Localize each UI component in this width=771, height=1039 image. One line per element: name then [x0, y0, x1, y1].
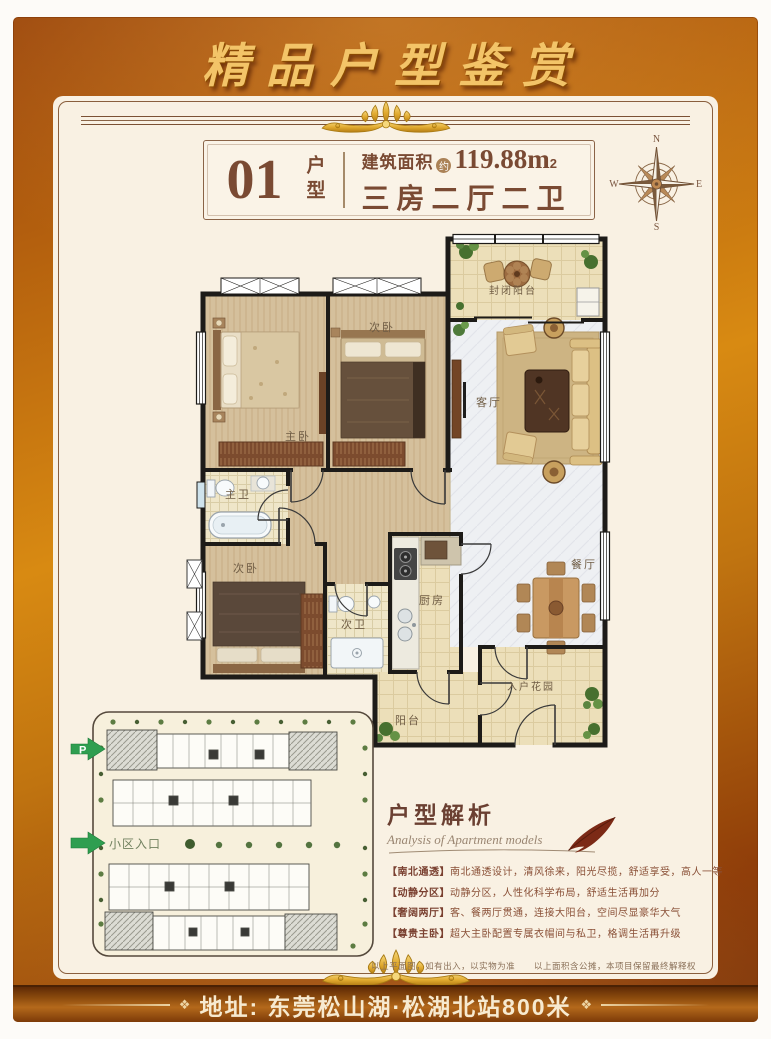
- content-panel: 01 户型 建筑面积 约 119.88m 2 三房二厅二卫: [53, 96, 718, 979]
- floor-plan: 封闭阳台 客厅 餐厅 主卧 次卧 主卫 次卧 次卫 厨房 阳台 入户花园: [183, 232, 623, 757]
- golden-frame: 精品户型鉴赏 01 户型 建筑面积 约 119.88m 2 三房二厅二卫: [13, 17, 758, 1022]
- label-master-bath: 主卫: [225, 488, 251, 501]
- analysis-title: 户型解析: [387, 796, 717, 830]
- area-label: 建筑面积: [361, 148, 433, 173]
- area-sup: 2: [550, 156, 557, 171]
- parking-label: P: [79, 745, 86, 757]
- address-text: 地址: 东莞松山湖·松湖北站800米: [199, 988, 571, 1022]
- bay-window-second: [333, 278, 421, 294]
- area-value: 119.88m: [454, 144, 549, 175]
- bay-window-master: [221, 278, 299, 294]
- layout-text: 三房二厅二卫: [361, 177, 571, 217]
- analysis-bullet: 【动静分区】动静分区，人性化科学布局，舒适生活再加分: [387, 884, 717, 905]
- furniture-bedroom-south: [213, 582, 323, 673]
- label-entry-garden: 入户花园: [507, 680, 555, 693]
- address-rule-right: [601, 1004, 709, 1006]
- diamond-ornament-icon: ❖: [581, 997, 593, 1013]
- poster-page: 精品户型鉴赏 01 户型 建筑面积 约 119.88m 2 三房二厅二卫: [0, 0, 771, 1039]
- label-second-bath: 次卫: [341, 617, 367, 631]
- label-master-bedroom: 主卧: [285, 430, 311, 443]
- site-plan: P 小区入口: [69, 708, 377, 961]
- label-bedroom-south: 次卧: [233, 561, 259, 575]
- unit-header-box: 01 户型 建筑面积 约 119.88m 2 三房二厅二卫: [203, 140, 595, 220]
- area-row: 建筑面积 约 119.88m 2: [361, 144, 571, 175]
- banner: 精品户型鉴赏: [13, 25, 758, 97]
- banner-title: 精品户型鉴赏: [185, 27, 586, 96]
- gold-ornament-top: [320, 98, 452, 134]
- analysis-subtitle-row: Analysis of Apartment models: [387, 832, 717, 855]
- diamond-ornament-icon: ❖: [179, 997, 191, 1013]
- compass-east-label: E: [696, 179, 702, 190]
- compass-rose: N S E W: [609, 132, 704, 232]
- unit-info: 建筑面积 约 119.88m 2 三房二厅二卫: [361, 144, 571, 217]
- label-kitchen: 厨房: [419, 594, 445, 607]
- analysis-subtitle: Analysis of Apartment models: [387, 832, 542, 847]
- community-entrance-label: 小区入口: [109, 837, 161, 851]
- feather-icon: [561, 815, 620, 855]
- divider: [343, 152, 345, 208]
- unit-type-label: 户型: [300, 155, 327, 205]
- unit-number: 01: [226, 152, 282, 208]
- analysis-bullet: 【奢阔两厅】客、餐两厅贯通，连接大阳台，空间尽显豪华大气: [387, 904, 717, 925]
- address-rule-left: [62, 1004, 170, 1006]
- disclaimer: 以上平面图，如有出入，以实物为准 以上面积含公摊，本项目保留最终解释权: [371, 960, 696, 972]
- address-bar: ❖ 地址: 东莞松山湖·松湖北站800米 ❖: [13, 985, 758, 1022]
- analysis-bullet: 【尊贵主卧】超大主卧配置专属衣帽间与私卫，格调生活再升级: [387, 925, 717, 946]
- approx-badge: 约: [436, 158, 451, 173]
- compass-south-label: S: [654, 222, 660, 232]
- analysis-bullet: 【南北通透】南北通透设计，清风徐来，阳光尽揽，舒适享受，高人一等: [387, 863, 717, 884]
- label-enclosed-balcony: 封闭阳台: [489, 284, 537, 297]
- label-balcony: 阳台: [395, 713, 421, 727]
- label-dining-room: 餐厅: [571, 557, 597, 571]
- label-bedroom-north: 次卧: [369, 320, 395, 334]
- compass-north-label: N: [653, 134, 660, 145]
- disclaimer-right: 以上面积含公摊，本项目保留最终解释权: [534, 961, 696, 971]
- label-living-room: 客厅: [476, 395, 502, 409]
- analysis-section: 户型解析 Analysis of Apartment models 【南北通透】…: [387, 796, 717, 945]
- compass-west-label: W: [609, 179, 619, 190]
- disclaimer-left: 以上平面图，如有出入，以实物为准: [371, 961, 515, 971]
- analysis-bullets: 【南北通透】南北通透设计，清风徐来，阳光尽揽，舒适享受，高人一等 【动静分区】动…: [387, 863, 717, 945]
